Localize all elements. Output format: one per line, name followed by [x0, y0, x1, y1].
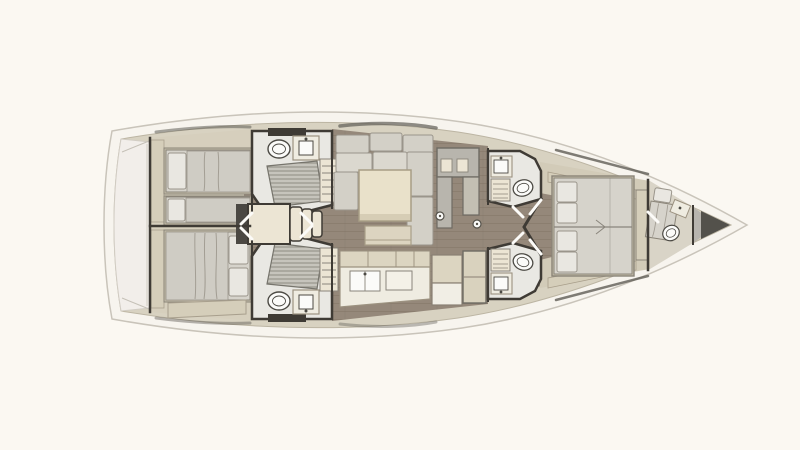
locker-band	[151, 140, 164, 222]
sofa-back-cushion-3	[403, 135, 433, 154]
pillow-bottom	[229, 268, 248, 296]
transom-platform	[114, 139, 150, 311]
toilet	[268, 140, 290, 158]
appliance-block	[432, 255, 462, 305]
sink	[491, 273, 512, 294]
knob-corridor-dot	[476, 223, 478, 225]
knob-saloon-dot	[439, 215, 441, 217]
shelf-unit	[491, 249, 510, 271]
sofa-back-cushion-2	[370, 133, 402, 151]
shower-grate	[267, 161, 323, 207]
sofa-seat-cushion-1	[336, 153, 372, 172]
unit-locker-2	[457, 159, 468, 172]
pillow-1	[557, 182, 577, 202]
worktop-panel	[386, 271, 412, 290]
overhead-hatch	[268, 128, 306, 136]
owner-cabin	[548, 172, 648, 288]
shelf-unit	[491, 179, 510, 201]
sofa-left-seat	[334, 172, 358, 210]
locker-band	[151, 230, 164, 308]
galley-sink	[350, 271, 380, 291]
unit-right-column	[463, 177, 479, 215]
sink	[491, 156, 512, 177]
dining-table	[359, 170, 411, 221]
pillow-3	[557, 231, 577, 251]
unit-locker-1	[441, 159, 452, 172]
sink	[293, 290, 319, 314]
double-berth-blanket	[166, 232, 228, 300]
berth-2-pillow	[168, 199, 185, 221]
pillow-2	[557, 203, 577, 223]
forward-head-starboard	[488, 243, 541, 299]
shelf-unit	[320, 248, 338, 291]
platform	[248, 204, 290, 244]
shower-grate	[267, 243, 323, 289]
forward-head-port	[488, 151, 541, 207]
overhead-hatch	[268, 314, 306, 322]
footboard	[636, 190, 648, 260]
aft-head-port	[252, 128, 338, 213]
galley	[340, 251, 486, 307]
berth-1-pillow	[168, 153, 186, 189]
upper-cabinets	[340, 251, 430, 267]
pillow-4	[557, 252, 577, 272]
toilet	[268, 292, 290, 310]
yacht-floor-plan	[0, 0, 800, 450]
sofa-back-cushion-1	[336, 135, 369, 153]
coffee-table	[365, 226, 411, 245]
tall-locker	[463, 251, 486, 303]
floor-plan-page	[0, 0, 800, 450]
sofa-seat-cushion-2	[373, 152, 407, 172]
aft-head-starboard	[252, 237, 338, 322]
transom-garage	[114, 139, 150, 311]
sink	[293, 136, 319, 160]
crew-pillow	[653, 188, 672, 203]
